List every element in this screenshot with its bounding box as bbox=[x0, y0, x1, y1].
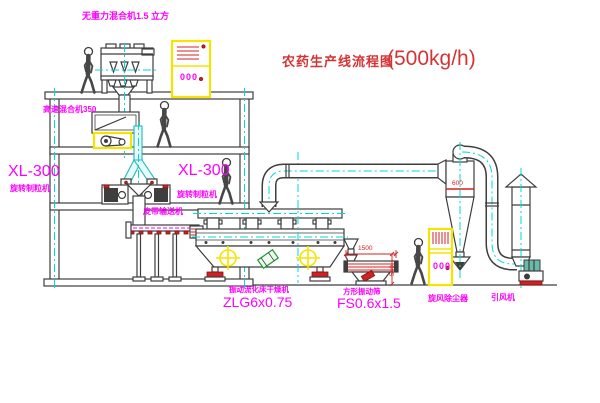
dim-cyclone: 600 bbox=[452, 181, 463, 188]
label-gravity-free-mixer: 无重力混合机1.5 立方 bbox=[82, 12, 169, 21]
control-cabinet-1 bbox=[172, 41, 210, 97]
process-flow-diagram: 无重力混合机1.5 立方 高速混合机350 XL-300 旋转制粒机 XL-30… bbox=[0, 0, 600, 403]
dim-sieve-length: 1500 bbox=[358, 246, 372, 253]
label-fan: 引风机 bbox=[491, 294, 515, 302]
diagram-title-capacity: (500kg/h) bbox=[387, 48, 476, 69]
granulator-left bbox=[102, 185, 128, 204]
label-belt-conveyor: 皮带输送机 bbox=[143, 208, 183, 216]
gravity-free-mixer bbox=[95, 44, 158, 95]
person-roof bbox=[82, 48, 95, 93]
label-dryer-model: ZLG6x0.75 bbox=[223, 295, 292, 309]
label-granulator-model-right: XL-300 bbox=[178, 163, 230, 179]
label-sieve-model: FS0.6x1.5 bbox=[337, 296, 401, 310]
control-cabinet-2 bbox=[429, 229, 452, 285]
label-cyclone: 旋风除尘器 bbox=[428, 295, 468, 303]
diagram-title: 农药生产线流程图 bbox=[282, 55, 394, 68]
cabinet1-display: 000 bbox=[180, 73, 198, 82]
label-granulator-name-left: 旋转制粒机 bbox=[10, 185, 50, 193]
high-speed-mixer bbox=[92, 112, 139, 148]
person-ground bbox=[412, 239, 425, 284]
cabinet2-display: 000 bbox=[433, 262, 451, 271]
label-granulator-model-left: XL-300 bbox=[8, 164, 60, 180]
label-dryer-name: 振动流化床干燥机 bbox=[229, 286, 289, 294]
person-floor2 bbox=[158, 102, 171, 147]
belt-conveyor bbox=[126, 222, 203, 281]
exhaust-duct bbox=[260, 164, 441, 212]
label-high-speed-mixer: 高速混合机350 bbox=[43, 106, 96, 114]
label-granulator-name-right: 旋转制粒机 bbox=[177, 191, 217, 199]
dim-sieve-height: 540 bbox=[390, 265, 397, 276]
